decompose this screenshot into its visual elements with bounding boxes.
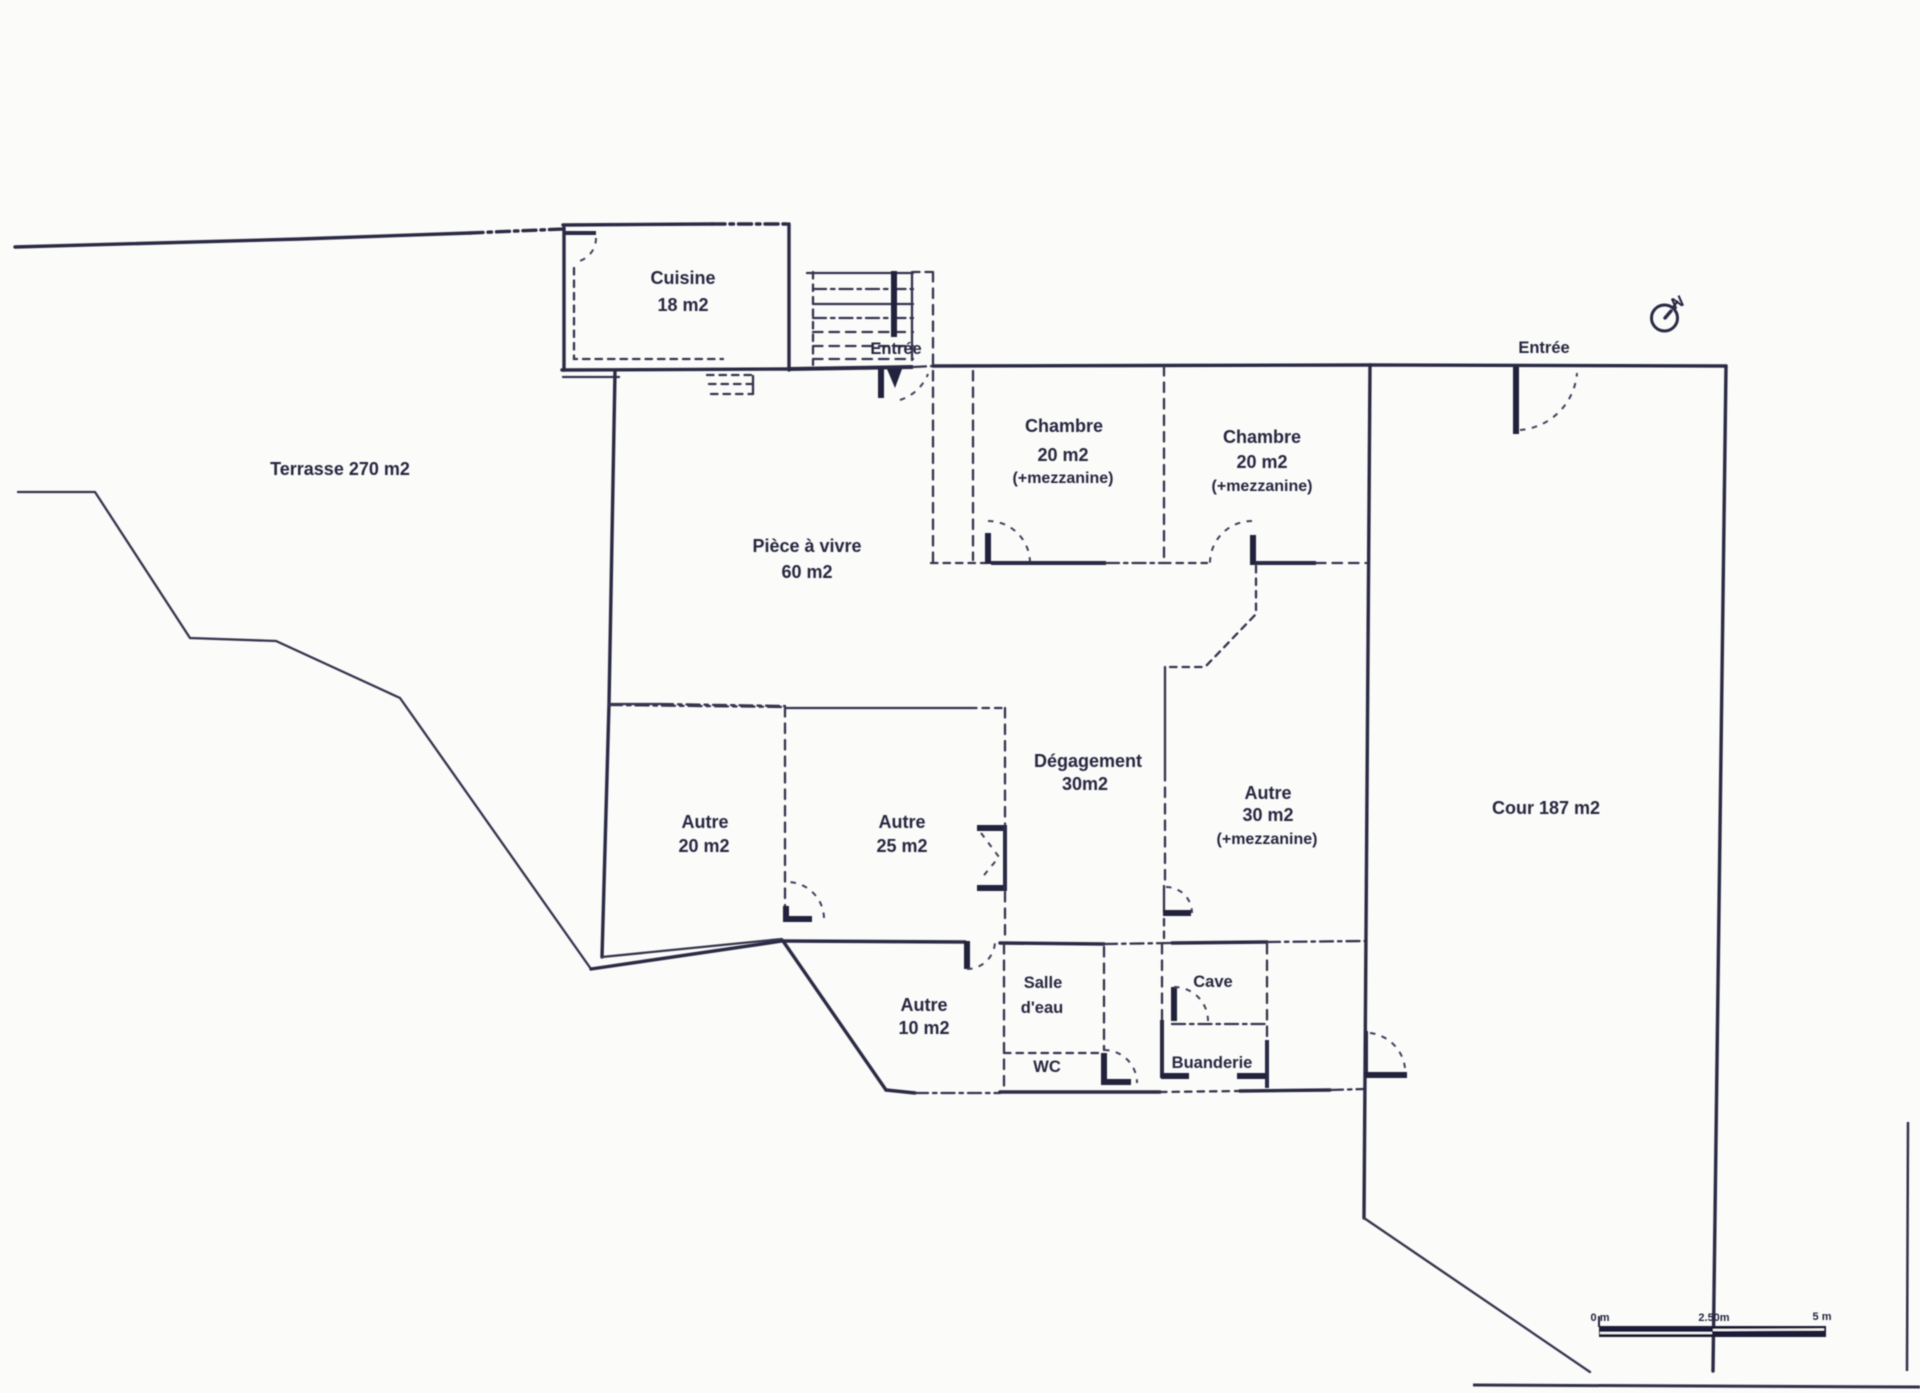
- svg-text:Autre: Autre: [878, 812, 925, 832]
- svg-text:Chambre: Chambre: [1223, 427, 1301, 447]
- svg-text:Pièce à vivre: Pièce à vivre: [752, 536, 861, 556]
- svg-text:Terrasse 270 m2: Terrasse 270 m2: [270, 459, 410, 479]
- svg-text:Autre: Autre: [681, 812, 728, 832]
- svg-text:Entrée: Entrée: [870, 340, 921, 358]
- svg-text:Dégagement: Dégagement: [1034, 751, 1142, 771]
- svg-text:Entrée: Entrée: [1518, 339, 1569, 357]
- svg-text:Cour 187 m2: Cour 187 m2: [1492, 798, 1600, 818]
- svg-text:Buanderie: Buanderie: [1172, 1054, 1253, 1072]
- svg-text:(+mezzanine): (+mezzanine): [1217, 831, 1318, 848]
- svg-text:Salle: Salle: [1024, 974, 1063, 992]
- svg-text:Cave: Cave: [1193, 973, 1232, 991]
- svg-text:0 m: 0 m: [1591, 1312, 1610, 1324]
- svg-text:20 m2: 20 m2: [1236, 452, 1287, 472]
- svg-text:Autre: Autre: [900, 995, 947, 1015]
- svg-text:5 m: 5 m: [1813, 1311, 1832, 1323]
- svg-text:30 m2: 30 m2: [1242, 805, 1293, 825]
- svg-text:d'eau: d'eau: [1021, 999, 1063, 1017]
- svg-text:20 m2: 20 m2: [678, 836, 729, 856]
- svg-text:30m2: 30m2: [1062, 774, 1108, 794]
- svg-text:Cuisine: Cuisine: [650, 268, 715, 288]
- svg-text:60 m2: 60 m2: [781, 562, 832, 582]
- svg-text:Chambre: Chambre: [1025, 416, 1103, 436]
- svg-text:18 m2: 18 m2: [657, 295, 708, 315]
- svg-text:2.50m: 2.50m: [1698, 1312, 1729, 1324]
- svg-text:(+mezzanine): (+mezzanine): [1013, 470, 1114, 487]
- svg-text:20 m2: 20 m2: [1037, 445, 1088, 465]
- svg-text:10 m2: 10 m2: [898, 1018, 949, 1038]
- svg-text:Autre: Autre: [1244, 783, 1291, 803]
- svg-text:25 m2: 25 m2: [876, 836, 927, 856]
- svg-text:WC: WC: [1033, 1058, 1061, 1076]
- svg-text:(+mezzanine): (+mezzanine): [1212, 478, 1313, 495]
